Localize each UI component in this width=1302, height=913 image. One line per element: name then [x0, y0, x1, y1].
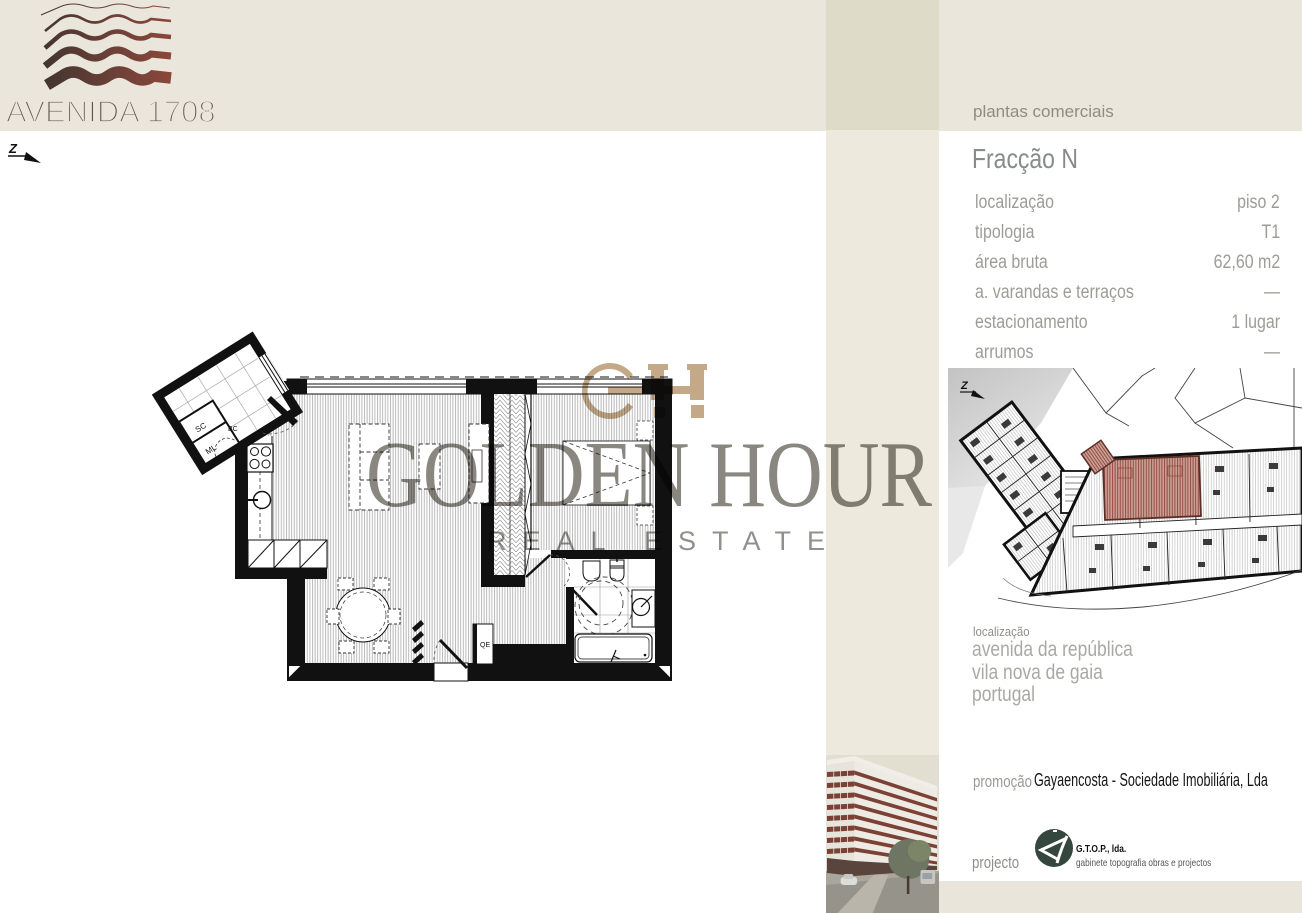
svg-text:QE: QE — [480, 642, 490, 649]
svg-text:BC: BC — [228, 426, 238, 433]
svg-text:Z: Z — [960, 380, 969, 392]
svg-text:Z: Z — [8, 141, 18, 156]
svg-text:AVENIDA 1708: AVENIDA 1708 — [6, 94, 216, 129]
